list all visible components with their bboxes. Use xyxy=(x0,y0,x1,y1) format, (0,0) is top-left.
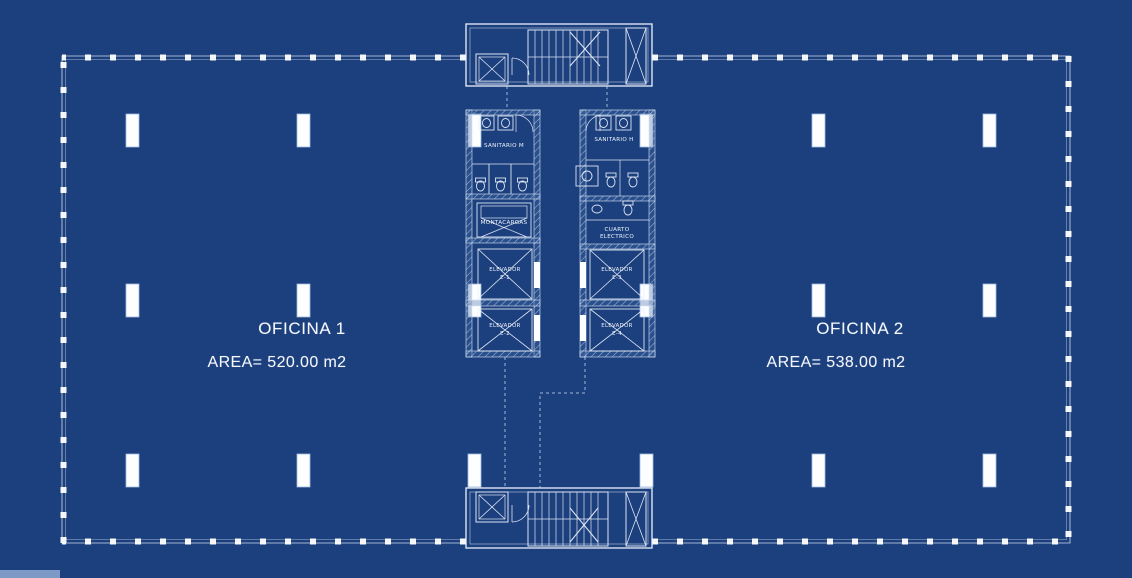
stair-block-top xyxy=(466,24,652,86)
office-2-title: OFICINA 2 xyxy=(816,319,904,339)
floor-plan-canvas: SANITARIO M SANITARIO H MONTACARGAS CUAR… xyxy=(0,0,1132,578)
cuarto-electrico-label-line2: ELECTRICO xyxy=(600,234,634,240)
office-2-area: AREA= 538.00 m2 xyxy=(767,354,906,372)
duct-shaft-icon xyxy=(626,492,646,546)
building-perimeter xyxy=(62,56,1070,543)
structural-columns xyxy=(126,114,996,487)
elevator-label: ELEVADOR xyxy=(601,323,632,329)
elevator-label: ELEVADOR xyxy=(601,267,632,273)
office-1-area: AREA= 520.00 m2 xyxy=(208,354,347,372)
sanitario-h-label: SANITARIO H xyxy=(594,137,633,143)
elevator-label: ELEVADOR xyxy=(489,323,520,329)
toilet-icon xyxy=(606,173,638,187)
elevator-label: ELEVADOR xyxy=(489,267,520,273)
toilet-icon xyxy=(476,178,528,191)
elevator-number: E-4 xyxy=(612,331,622,337)
shaft-icon xyxy=(476,54,508,84)
stairs-icon xyxy=(528,30,608,84)
elevator-number: E-3 xyxy=(612,275,622,281)
stair-block-bottom xyxy=(466,488,652,548)
shaft-icon xyxy=(476,492,508,522)
office-1-title: OFICINA 1 xyxy=(258,319,346,339)
elevator-number: E-2 xyxy=(500,331,510,337)
montacargas-label: MONTACARGAS xyxy=(481,220,528,226)
edge-artifact-strip xyxy=(0,570,60,578)
elevator-number: E-1 xyxy=(500,275,510,281)
duct-shaft-icon xyxy=(626,28,646,84)
cuarto-electrico-label-line1: CUARTO xyxy=(605,227,630,233)
stairs-icon xyxy=(528,492,608,546)
sanitario-m-label: SANITARIO M xyxy=(484,143,524,149)
blueprint-drawing: SANITARIO M SANITARIO H MONTACARGAS CUAR… xyxy=(0,0,1132,578)
